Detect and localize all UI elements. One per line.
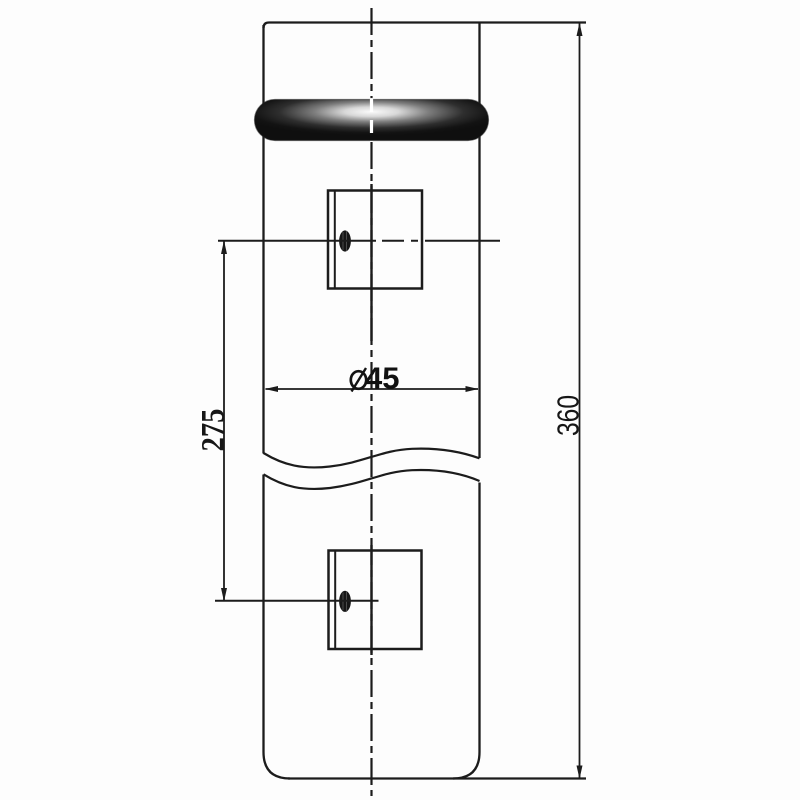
svg-text:45: 45 bbox=[365, 361, 399, 396]
svg-text:275: 275 bbox=[196, 409, 232, 452]
svg-text:360: 360 bbox=[551, 395, 586, 436]
